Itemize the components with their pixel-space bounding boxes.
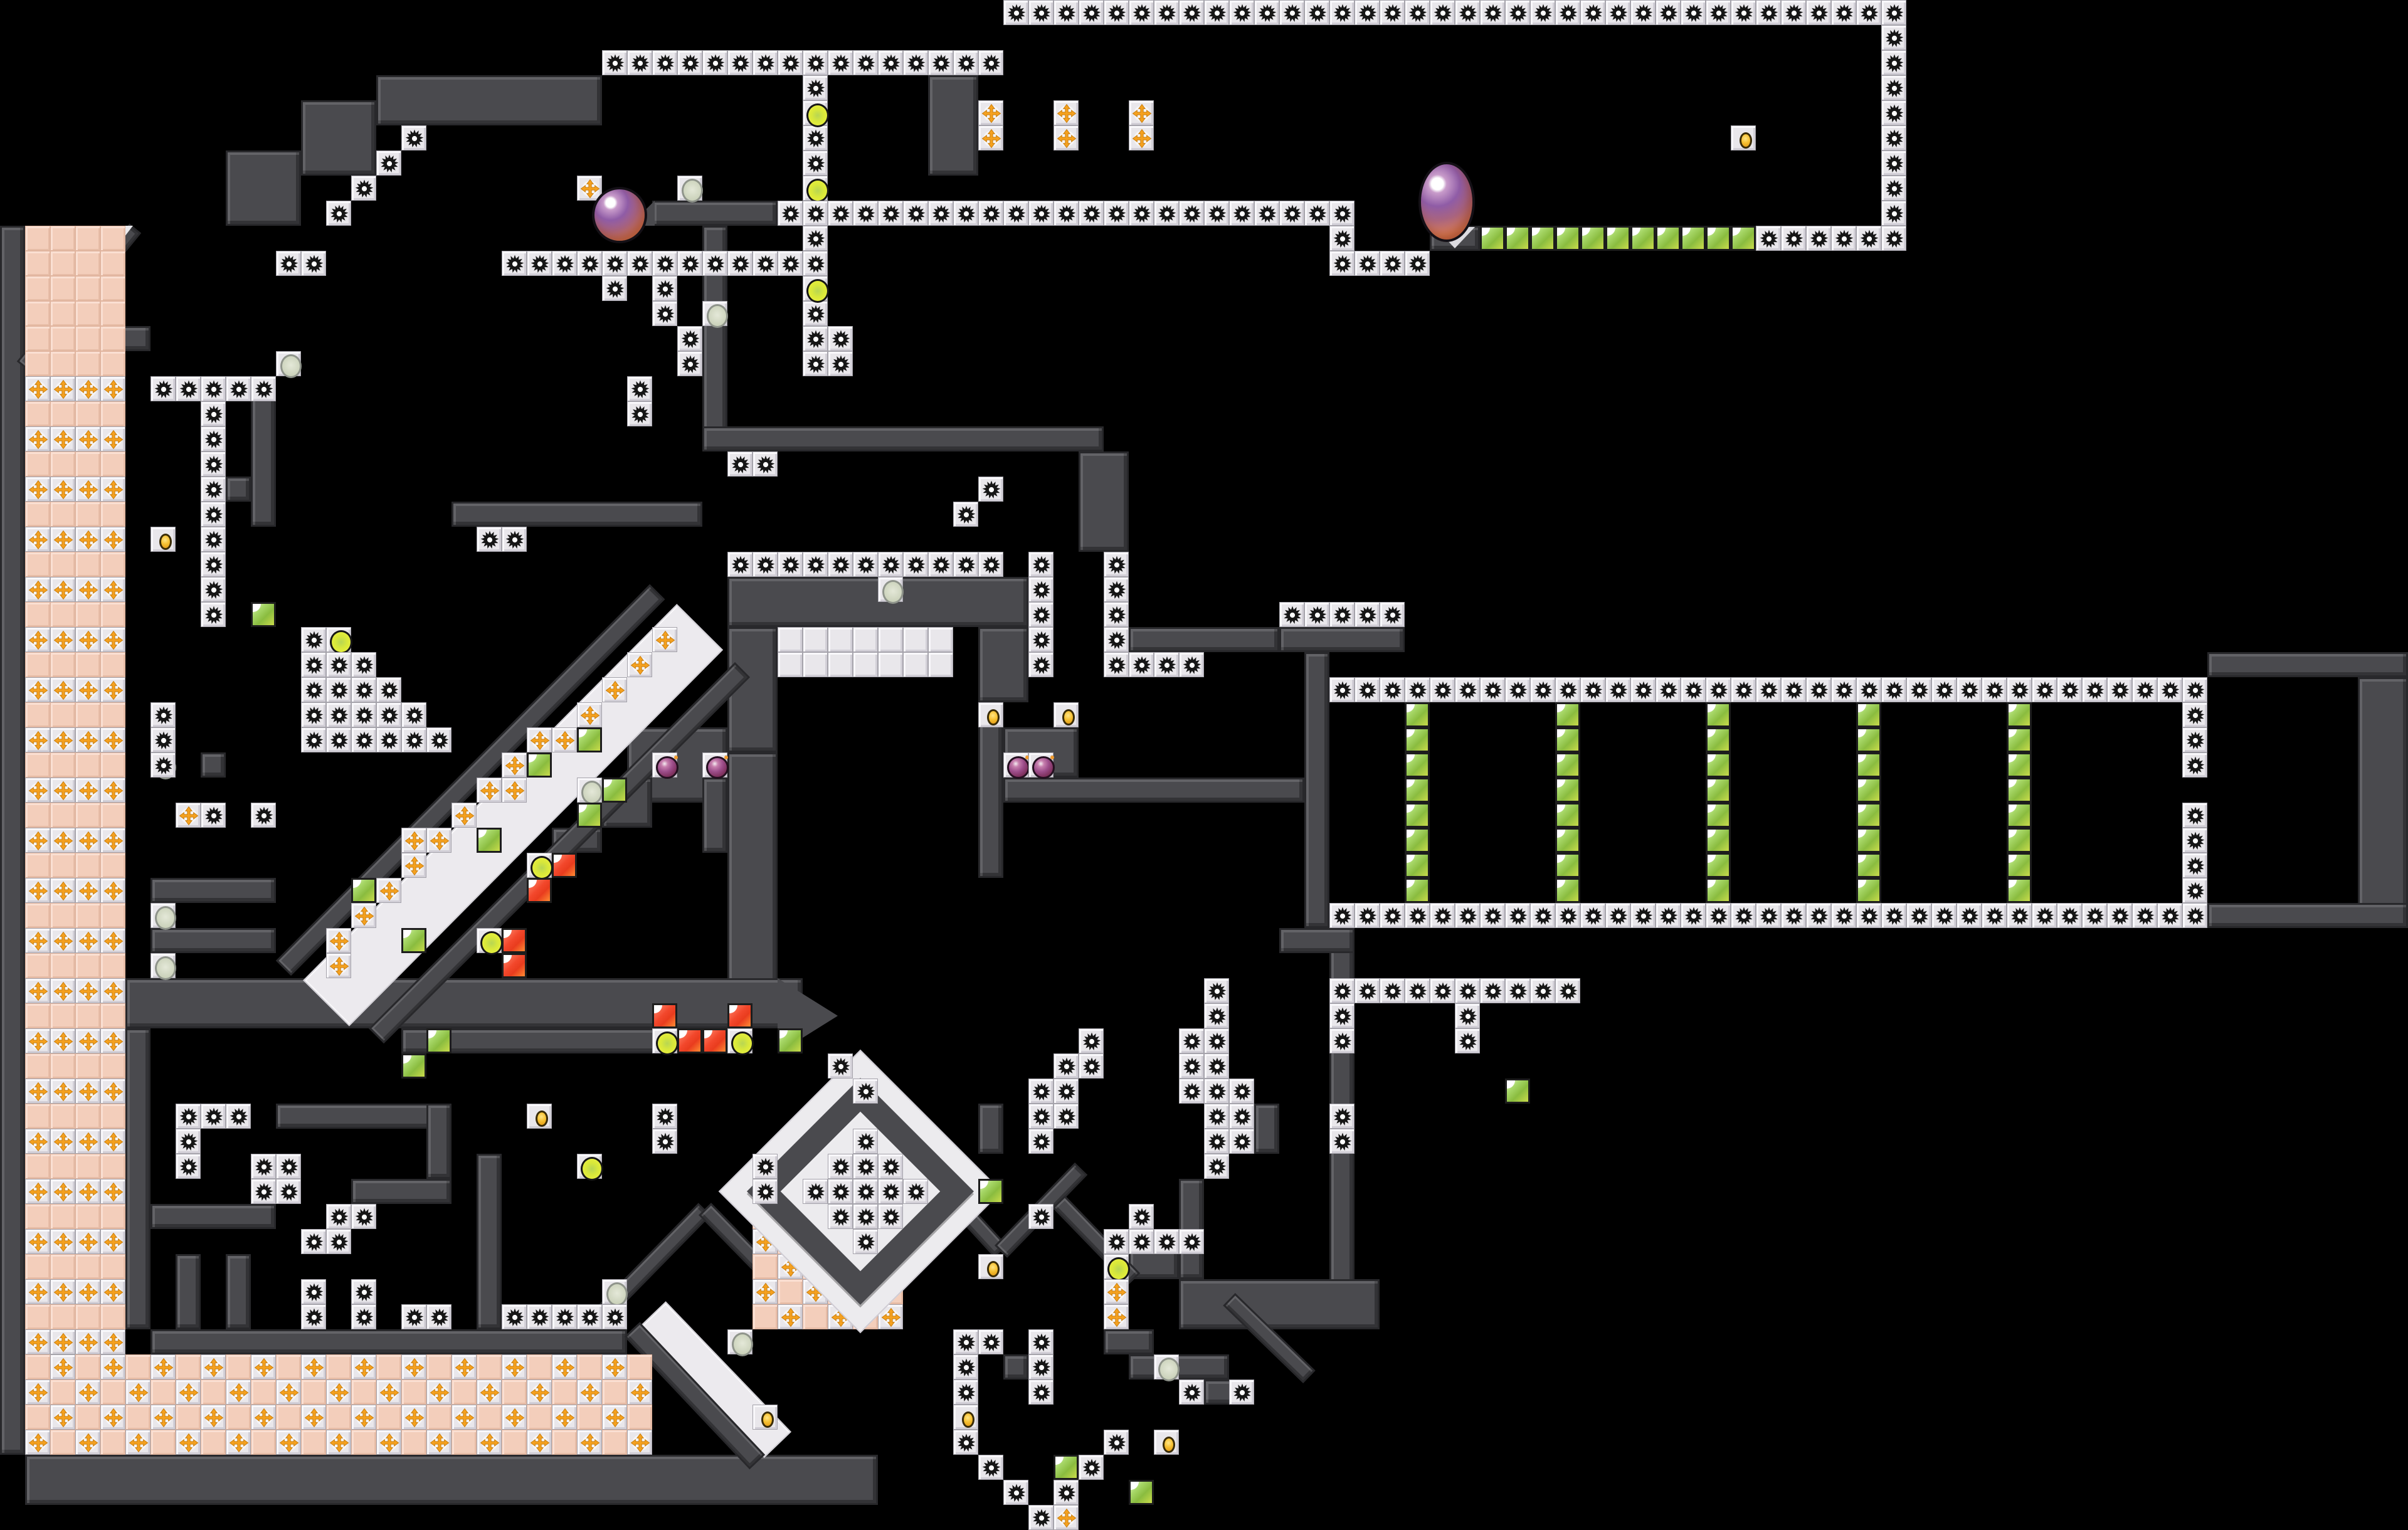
gear-tile xyxy=(1781,0,1806,25)
cross-icon xyxy=(981,103,1002,124)
gear-icon xyxy=(1608,680,1629,701)
pink-tile xyxy=(125,1405,150,1430)
gear-tile xyxy=(1982,903,2007,928)
gear-tile xyxy=(1028,0,1053,25)
gear-tile xyxy=(1003,0,1028,25)
gear-tile xyxy=(1079,0,1104,25)
cross-icon xyxy=(103,579,124,601)
gear-tile xyxy=(1881,100,1906,125)
gear-icon xyxy=(1056,203,1077,224)
gear-tile xyxy=(1028,201,1053,226)
gear-tile xyxy=(376,150,401,176)
cross-spike-tile xyxy=(25,627,50,652)
pink-tile xyxy=(75,276,100,301)
cross-icon xyxy=(28,1081,49,1102)
cross-spike-tile xyxy=(752,1279,778,1304)
gear-tile xyxy=(150,376,176,401)
gear-icon xyxy=(1056,3,1077,24)
yellow-orb-tile xyxy=(803,276,828,301)
green-item-block xyxy=(1706,727,1731,752)
wall-block xyxy=(150,878,276,903)
gear-icon xyxy=(1382,680,1403,701)
cross-icon xyxy=(53,730,74,751)
gear-tile xyxy=(853,1129,878,1154)
cross-icon xyxy=(53,379,74,400)
cross-icon xyxy=(53,479,74,500)
gear-icon xyxy=(1181,1056,1203,1077)
gear-icon xyxy=(2185,830,2206,852)
pink-tile xyxy=(75,251,100,276)
green-item-block xyxy=(1053,1455,1079,1480)
pink-tile xyxy=(552,1380,577,1405)
gear-tile xyxy=(351,727,376,752)
pink-tile xyxy=(50,301,75,326)
gear-icon xyxy=(1332,604,1353,626)
cross-spike-tile xyxy=(401,1405,426,1430)
pink-tile xyxy=(75,702,100,727)
cross-icon xyxy=(479,1382,500,1403)
cross-icon xyxy=(28,579,49,601)
gear-icon xyxy=(1658,905,1679,927)
cross-spike-tile xyxy=(50,727,75,752)
cross-spike-tile xyxy=(75,878,100,903)
cross-icon xyxy=(354,1407,375,1428)
gear-tile xyxy=(2182,752,2207,778)
gear-icon xyxy=(2135,680,2156,701)
gear-tile xyxy=(1380,0,1405,25)
gear-tile xyxy=(1731,903,1756,928)
gear-tile xyxy=(1881,150,1906,176)
gear-icon xyxy=(1282,3,1303,24)
cross-icon xyxy=(53,680,74,701)
cross-spike-tile xyxy=(477,1430,502,1455)
gear-tile xyxy=(1831,0,1856,25)
gear-tile xyxy=(1530,0,1555,25)
gear-icon xyxy=(1106,1432,1127,1453)
pink-tile xyxy=(100,401,125,426)
gear-tile xyxy=(176,1129,201,1154)
pink-tile xyxy=(75,1104,100,1129)
gear-tile xyxy=(878,552,903,577)
gear-tile xyxy=(1204,1129,1229,1154)
cross-icon xyxy=(605,680,626,701)
cross-spike-tile xyxy=(176,803,201,828)
gear-tile xyxy=(752,451,778,477)
pink-tile xyxy=(351,1380,376,1405)
cross-spike-tile xyxy=(1053,100,1079,125)
cross-spike-tile xyxy=(75,677,100,702)
gear-tile xyxy=(176,376,201,401)
gear-tile xyxy=(1480,677,1505,702)
green-item-block xyxy=(1405,702,1430,727)
cross-spike-tile xyxy=(75,778,100,803)
gear-tile xyxy=(1104,602,1129,627)
gear-tile xyxy=(1204,1154,1229,1179)
gear-tile xyxy=(903,201,928,226)
gear-icon xyxy=(354,705,375,726)
gear-icon xyxy=(1307,203,1328,224)
gold-dot-icon xyxy=(536,1111,548,1127)
pink-tile xyxy=(50,1154,75,1179)
gear-tile xyxy=(201,552,226,577)
cross-icon xyxy=(28,529,49,551)
cross-icon xyxy=(53,1081,74,1102)
cross-spike-tile xyxy=(50,778,75,803)
gear-tile xyxy=(276,1154,301,1179)
gear-tile xyxy=(326,1204,351,1229)
gear-tile xyxy=(828,552,853,577)
gear-tile xyxy=(301,1279,326,1304)
gear-icon xyxy=(1207,1156,1228,1178)
gear-tile xyxy=(1681,0,1706,25)
gear-icon xyxy=(1558,981,1579,1002)
wall-block xyxy=(978,702,1003,878)
gear-icon xyxy=(755,253,776,275)
save-orb-tile xyxy=(602,1279,627,1304)
gear-icon xyxy=(956,1432,977,1453)
gear-tile xyxy=(1053,1480,1079,1505)
cross-icon xyxy=(103,529,124,551)
gear-icon xyxy=(605,1307,626,1328)
gear-icon xyxy=(304,253,325,275)
gear-tile xyxy=(1304,0,1329,25)
gear-tile xyxy=(1455,1003,1480,1028)
cross-spike-tile xyxy=(451,1354,477,1380)
gear-tile xyxy=(953,1430,978,1455)
cross-spike-tile xyxy=(150,1405,176,1430)
gear-tile xyxy=(1204,1079,1229,1104)
gear-icon xyxy=(1106,203,1127,224)
gear-icon xyxy=(956,203,977,224)
save-orb-tile xyxy=(677,176,702,201)
gear-tile xyxy=(2182,702,2207,727)
gear-icon xyxy=(1031,655,1052,676)
gear-icon xyxy=(1207,1031,1228,1052)
gear-tile xyxy=(878,1179,903,1204)
save-orb-tile xyxy=(150,953,176,978)
gear-tile xyxy=(1706,0,1731,25)
gear-icon xyxy=(1733,680,1755,701)
gear-tile xyxy=(2182,853,2207,878)
cross-spike-tile xyxy=(75,1229,100,1254)
gear-icon xyxy=(956,1332,977,1353)
gear-tile xyxy=(953,1380,978,1405)
cross-icon xyxy=(103,1282,124,1303)
cross-spike-tile xyxy=(50,1279,75,1304)
gray-orb-icon xyxy=(707,304,728,328)
gear-tile xyxy=(1380,251,1405,276)
wall-block xyxy=(276,1104,451,1129)
gear-icon xyxy=(1332,1131,1353,1153)
cross-spike-tile xyxy=(50,426,75,451)
cross-icon xyxy=(28,830,49,852)
cross-spike-tile xyxy=(376,1380,401,1405)
gear-tile xyxy=(1630,903,1655,928)
gear-icon xyxy=(1407,981,1428,1002)
green-item-block xyxy=(1405,878,1430,903)
cross-icon xyxy=(1106,1282,1127,1303)
gear-tile xyxy=(1580,0,1605,25)
gear-icon xyxy=(379,680,400,701)
cross-icon xyxy=(103,730,124,751)
cross-spike-tile xyxy=(25,928,50,953)
gray-orb-icon xyxy=(732,1332,753,1356)
gear-icon xyxy=(2185,805,2206,826)
cross-spike-tile xyxy=(25,1028,50,1053)
gear-icon xyxy=(1307,604,1328,626)
gear-tile xyxy=(1455,677,1480,702)
gear-icon xyxy=(329,655,350,676)
gear-icon xyxy=(630,253,651,275)
pink-tile xyxy=(50,1204,75,1229)
gear-icon xyxy=(1533,905,1554,927)
cross-icon xyxy=(78,429,99,450)
pink-tile xyxy=(100,552,125,577)
gear-icon xyxy=(354,1282,375,1303)
cross-icon xyxy=(304,1407,325,1428)
white-tile xyxy=(803,627,828,652)
cross-icon xyxy=(53,630,74,651)
white-tile xyxy=(803,652,828,677)
cross-icon xyxy=(53,1357,74,1378)
yellow-orb-icon xyxy=(656,1031,679,1055)
gear-icon xyxy=(1508,905,1529,927)
pink-tile xyxy=(25,401,50,426)
green-item-block xyxy=(1555,752,1580,778)
gear-icon xyxy=(253,1156,275,1178)
gear-icon xyxy=(304,680,325,701)
pink-tile xyxy=(100,326,125,351)
gear-tile xyxy=(727,451,752,477)
pink-tile xyxy=(75,1304,100,1329)
wall-block xyxy=(226,477,251,502)
green-item-block xyxy=(1630,226,1655,251)
cross-icon xyxy=(605,1407,626,1428)
gear-tile xyxy=(953,201,978,226)
pink-tile xyxy=(75,502,100,527)
gear-icon xyxy=(1332,1106,1353,1127)
gray-orb-icon xyxy=(155,906,176,930)
gear-tile xyxy=(426,727,451,752)
gear-icon xyxy=(1081,203,1102,224)
cross-spike-tile xyxy=(125,1430,150,1455)
pink-tile xyxy=(176,1405,201,1430)
gear-icon xyxy=(354,1206,375,1228)
gear-icon xyxy=(1181,1031,1203,1052)
gear-icon xyxy=(1809,3,1830,24)
gear-icon xyxy=(830,354,852,375)
gear-tile xyxy=(527,251,552,276)
gear-tile xyxy=(1028,577,1053,602)
gear-tile xyxy=(878,50,903,75)
gear-icon xyxy=(2185,855,2206,877)
green-item-block xyxy=(1555,828,1580,853)
cross-spike-tile xyxy=(25,1179,50,1204)
gear-icon xyxy=(1758,680,1780,701)
white-tile xyxy=(928,652,953,677)
gear-icon xyxy=(1683,680,1704,701)
pink-tile xyxy=(25,1053,50,1079)
gear-tile xyxy=(1405,903,1430,928)
gear-icon xyxy=(805,228,826,250)
wall-block xyxy=(2358,677,2408,928)
yellow-orb-icon xyxy=(1107,1257,1130,1281)
gear-tile xyxy=(1856,0,1881,25)
cross-spike-tile xyxy=(376,878,401,903)
gear-tile xyxy=(2007,677,2032,702)
red-item-block xyxy=(727,1003,752,1028)
cross-spike-tile xyxy=(75,376,100,401)
pink-tile xyxy=(100,301,125,326)
gear-icon xyxy=(479,529,500,551)
yellow-orb-tile xyxy=(326,627,351,652)
cross-icon xyxy=(329,1432,350,1453)
cross-spike-tile xyxy=(50,1354,75,1380)
gear-tile xyxy=(1329,978,1354,1003)
cross-icon xyxy=(1131,103,1153,124)
green-item-block xyxy=(2007,752,2032,778)
wall-block xyxy=(376,75,602,125)
pink-tile xyxy=(50,502,75,527)
gear-tile xyxy=(1605,903,1630,928)
gear-tile xyxy=(351,1204,376,1229)
gear-icon xyxy=(830,1056,852,1077)
pink-tile xyxy=(25,251,50,276)
wall-block xyxy=(125,978,803,1028)
gear-icon xyxy=(1834,680,1855,701)
gear-tile xyxy=(853,201,878,226)
red-item-block xyxy=(552,853,577,878)
gear-tile xyxy=(828,1179,853,1204)
cross-icon xyxy=(153,1407,174,1428)
pink-tile xyxy=(50,702,75,727)
green-item-block xyxy=(2007,702,2032,727)
gear-tile xyxy=(828,326,853,351)
cross-icon xyxy=(78,1232,99,1253)
gear-icon xyxy=(705,253,726,275)
gear-icon xyxy=(1232,203,1253,224)
cross-spike-tile xyxy=(25,978,50,1003)
cross-spike-tile xyxy=(326,1430,351,1455)
cross-icon xyxy=(103,630,124,651)
wall-block xyxy=(1304,652,1329,928)
cross-icon xyxy=(28,1432,49,1453)
gear-icon xyxy=(1332,1031,1353,1052)
cross-spike-tile xyxy=(75,727,100,752)
pink-tile xyxy=(100,1003,125,1028)
pink-tile xyxy=(100,1254,125,1279)
cross-icon xyxy=(203,1357,224,1378)
gear-icon xyxy=(404,1307,425,1328)
gold-item-tile xyxy=(978,1254,1003,1279)
gear-icon xyxy=(1131,1206,1153,1228)
gear-tile xyxy=(953,1329,978,1354)
wall-block xyxy=(176,1254,201,1329)
cross-icon xyxy=(103,1131,124,1153)
cross-spike-tile xyxy=(25,477,50,502)
cross-icon xyxy=(78,1031,99,1052)
gear-icon xyxy=(906,554,927,576)
gear-tile xyxy=(1053,1079,1079,1104)
gear-tile xyxy=(803,201,828,226)
gear-icon xyxy=(830,329,852,350)
cross-spike-tile xyxy=(351,1405,376,1430)
pink-tile xyxy=(50,953,75,978)
gear-icon xyxy=(1006,1482,1027,1504)
white-tile xyxy=(828,652,853,677)
cross-spike-tile xyxy=(477,778,502,803)
yellow-orb-tile xyxy=(577,1154,602,1179)
pink-tile xyxy=(100,953,125,978)
gear-icon xyxy=(379,705,400,726)
green-item-block xyxy=(1580,226,1605,251)
cross-spike-tile xyxy=(75,1129,100,1154)
cross-icon xyxy=(78,379,99,400)
gear-icon xyxy=(1457,1006,1479,1027)
cross-icon xyxy=(53,981,74,1002)
gear-tile xyxy=(201,1104,226,1129)
gear-icon xyxy=(1382,253,1403,275)
gear-icon xyxy=(1031,579,1052,601)
gold-dot-icon xyxy=(987,709,1000,725)
cross-spike-tile xyxy=(100,1179,125,1204)
gear-icon xyxy=(880,203,902,224)
pink-tile xyxy=(25,752,50,778)
cross-icon xyxy=(103,1181,124,1203)
wall-block xyxy=(1129,627,1279,652)
pink-tile xyxy=(25,326,50,351)
gear-icon xyxy=(2009,680,2030,701)
cross-icon xyxy=(53,780,74,801)
gear-tile xyxy=(1881,201,1906,226)
cross-spike-tile xyxy=(25,1079,50,1104)
gear-icon xyxy=(379,730,400,751)
green-item-block xyxy=(1505,1079,1530,1104)
cross-spike-tile xyxy=(627,1380,652,1405)
cross-spike-tile xyxy=(50,828,75,853)
gear-icon xyxy=(830,203,852,224)
cross-icon xyxy=(78,479,99,500)
gear-tile xyxy=(1204,1104,1229,1129)
gear-tile xyxy=(652,50,677,75)
cross-spike-tile xyxy=(100,527,125,552)
pink-tile xyxy=(276,1405,301,1430)
gear-tile xyxy=(928,552,953,577)
gear-icon xyxy=(1633,3,1654,24)
cross-icon xyxy=(78,1332,99,1353)
gear-icon xyxy=(354,680,375,701)
gear-tile xyxy=(602,50,627,75)
cross-icon xyxy=(429,830,450,852)
gear-tile xyxy=(928,201,953,226)
gear-icon xyxy=(1457,981,1479,1002)
gear-tile xyxy=(301,251,326,276)
cross-icon xyxy=(404,1407,425,1428)
pink-tile xyxy=(25,602,50,627)
gear-tile xyxy=(1028,1204,1053,1229)
pink-tile xyxy=(75,1053,100,1079)
gear-icon xyxy=(203,579,224,601)
gear-tile xyxy=(1229,1079,1254,1104)
pink-tile xyxy=(477,1405,502,1430)
cross-icon xyxy=(28,379,49,400)
gear-tile xyxy=(1856,677,1881,702)
gear-tile xyxy=(652,251,677,276)
gear-icon xyxy=(329,680,350,701)
gear-icon xyxy=(1508,680,1529,701)
gear-icon xyxy=(1181,1081,1203,1102)
gear-icon xyxy=(981,1332,1002,1353)
